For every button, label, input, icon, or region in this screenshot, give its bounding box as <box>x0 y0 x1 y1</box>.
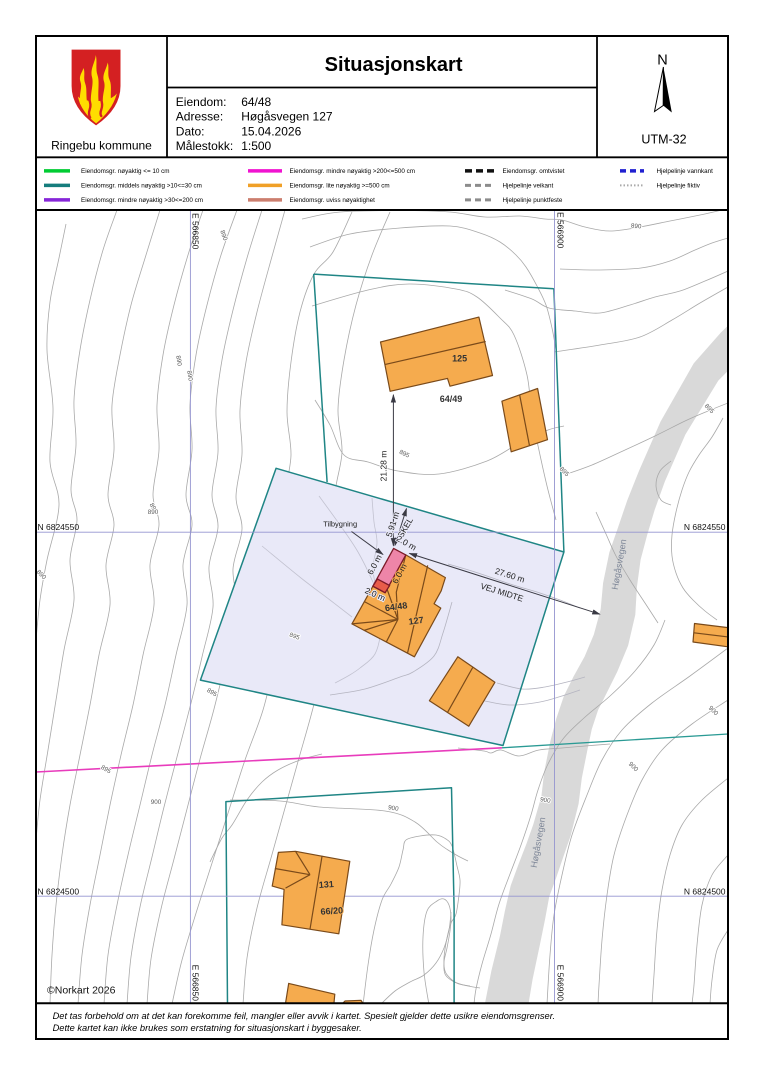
svg-text:©Norkart 2026: ©Norkart 2026 <box>47 985 116 997</box>
svg-text:N 6824500: N 6824500 <box>38 886 80 896</box>
svg-text:Eiendom:: Eiendom: <box>176 95 227 109</box>
svg-text:E 566900: E 566900 <box>556 965 566 1002</box>
svg-text:890: 890 <box>631 223 643 231</box>
svg-text:UTM-32: UTM-32 <box>641 133 686 147</box>
svg-text:64/48: 64/48 <box>241 95 271 109</box>
svg-text:64/49: 64/49 <box>440 394 463 404</box>
svg-text:N 6824550: N 6824550 <box>684 522 726 532</box>
svg-text:Eiendomsgr. mindre nøyaktig >2: Eiendomsgr. mindre nøyaktig >200<=500 cm <box>290 168 415 175</box>
svg-text:Det tas forbehold om at det ka: Det tas forbehold om at det kan forekomm… <box>53 1011 555 1021</box>
svg-text:1:500: 1:500 <box>241 139 271 153</box>
svg-text:N 6824500: N 6824500 <box>684 886 726 896</box>
svg-text:Eiendomsgr. omtvistet: Eiendomsgr. omtvistet <box>503 168 565 175</box>
svg-text:Eiendomsgr. mindre nøyaktig >3: Eiendomsgr. mindre nøyaktig >30<=200 cm <box>81 197 203 204</box>
svg-text:Eiendomsgr. nøyaktig <= 10 cm: Eiendomsgr. nøyaktig <= 10 cm <box>81 168 170 175</box>
svg-text:900: 900 <box>151 799 162 806</box>
svg-text:E 566850: E 566850 <box>191 965 201 1002</box>
svg-text:Hjelpelinje veikant: Hjelpelinje veikant <box>503 183 554 190</box>
svg-text:Ringebu kommune: Ringebu kommune <box>51 139 152 153</box>
svg-text:N: N <box>657 53 667 69</box>
svg-text:Eiendomsgr. uviss nøyaktighet: Eiendomsgr. uviss nøyaktighet <box>290 197 376 204</box>
svg-text:Dato:: Dato: <box>176 124 205 138</box>
svg-text:125: 125 <box>452 354 467 364</box>
svg-text:Eiendomsgr. lite nøyaktig >=50: Eiendomsgr. lite nøyaktig >=500 cm <box>290 183 390 190</box>
svg-text:Situasjonskart: Situasjonskart <box>325 54 463 76</box>
svg-text:Høgåsvegen 127: Høgåsvegen 127 <box>241 110 333 124</box>
svg-text:Hjelpelinje vannkant: Hjelpelinje vannkant <box>657 168 714 175</box>
svg-text:E 566900: E 566900 <box>556 212 566 249</box>
svg-text:Eiendomsgr. middels nøyaktig >: Eiendomsgr. middels nøyaktig >10<=30 cm <box>81 183 202 190</box>
svg-text:E 566850: E 566850 <box>191 213 201 250</box>
svg-text:127: 127 <box>408 615 424 627</box>
svg-text:Tilbygning: Tilbygning <box>323 519 357 528</box>
svg-text:Målestokk:: Målestokk: <box>176 139 233 153</box>
svg-text:890: 890 <box>148 509 159 516</box>
svg-text:Hjelpelinje fiktiv: Hjelpelinje fiktiv <box>657 183 701 190</box>
svg-text:131: 131 <box>318 879 334 890</box>
svg-text:N 6824550: N 6824550 <box>38 522 80 532</box>
svg-text:21.28 m: 21.28 m <box>379 451 389 482</box>
svg-text:66/20: 66/20 <box>320 905 343 917</box>
svg-text:15.04.2026: 15.04.2026 <box>241 124 301 138</box>
svg-text:Adresse:: Adresse: <box>176 110 223 124</box>
svg-text:Hjelpelinje punktfeste: Hjelpelinje punktfeste <box>503 197 563 204</box>
svg-text:Dette kartet kan ikke brukes s: Dette kartet kan ikke brukes som erstatn… <box>53 1023 362 1033</box>
